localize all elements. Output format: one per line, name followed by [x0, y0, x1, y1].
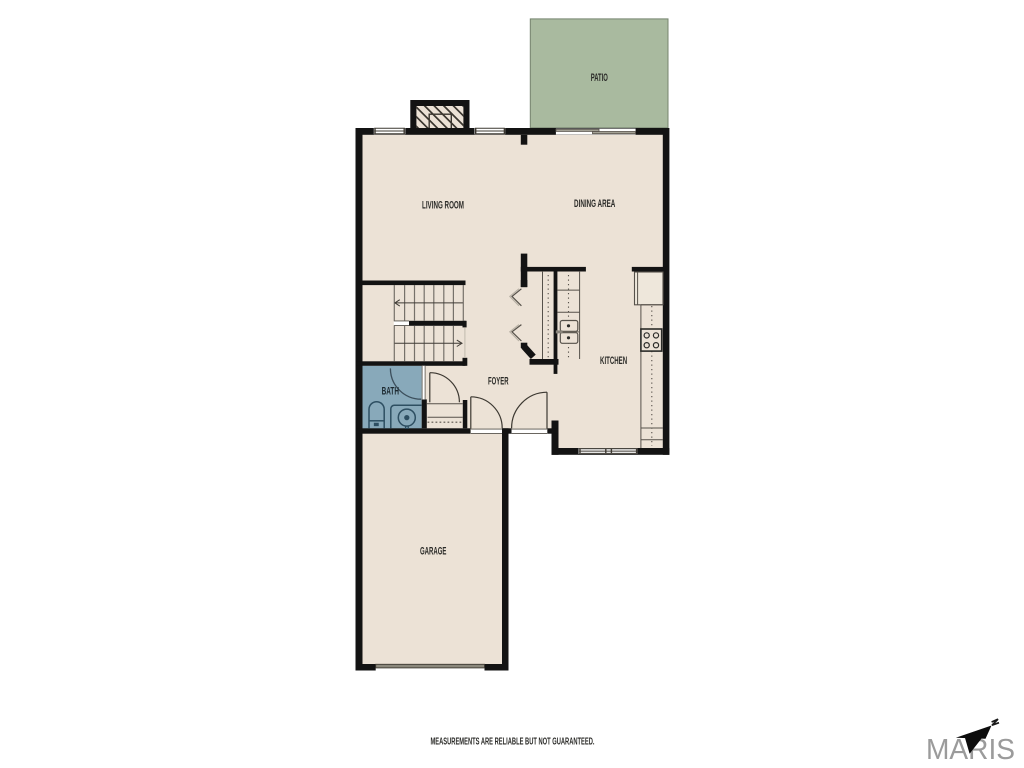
svg-text:GARAGE: GARAGE	[420, 546, 447, 558]
svg-text:KITCHEN: KITCHEN	[600, 355, 627, 367]
svg-text:DINING AREA: DINING AREA	[574, 198, 616, 210]
svg-text:LIVING ROOM: LIVING ROOM	[422, 199, 464, 211]
svg-text:PATIO: PATIO	[591, 72, 608, 84]
svg-text:FOYER: FOYER	[488, 376, 509, 388]
svg-text:MEASUREMENTS ARE RELIABLE BUT: MEASUREMENTS ARE RELIABLE BUT NOT GUARAN…	[431, 737, 595, 748]
svg-text:BATH: BATH	[382, 386, 399, 398]
